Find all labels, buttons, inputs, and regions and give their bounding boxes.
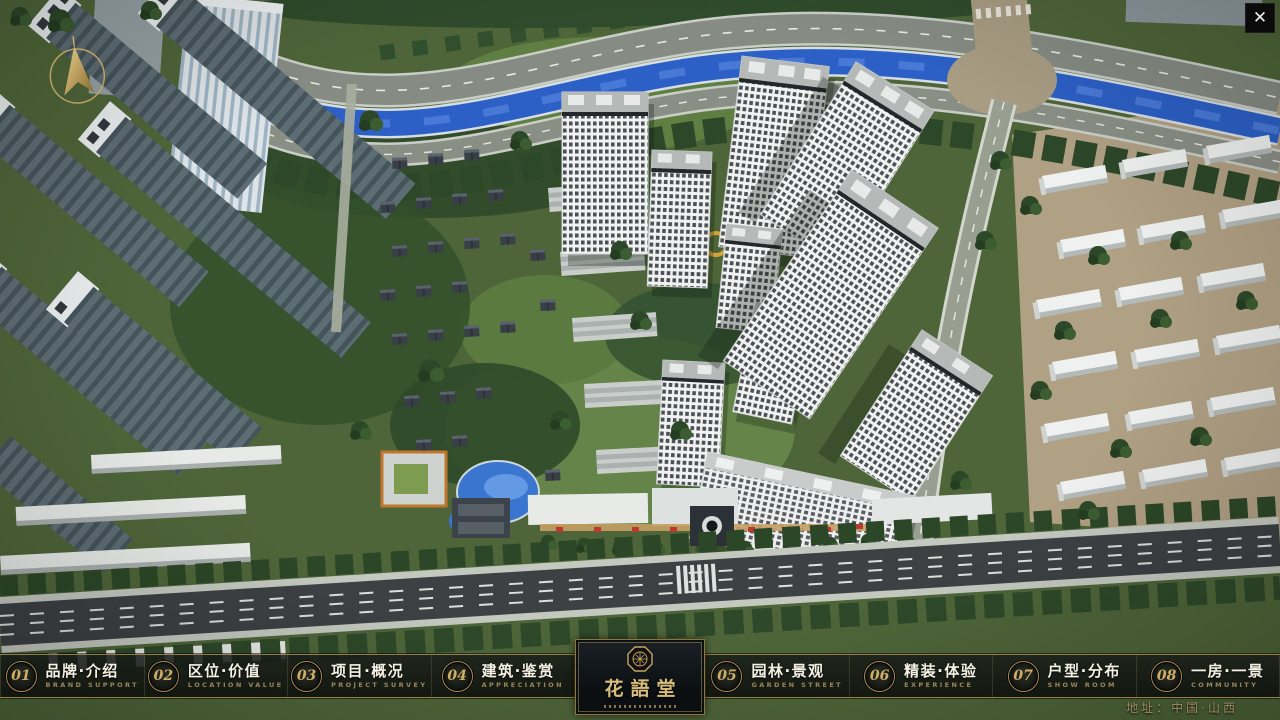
close-icon: ✕ xyxy=(1253,10,1267,27)
nav-sublabel: SHOW ROOM xyxy=(1048,682,1117,689)
nav-label: 精装·体验 xyxy=(904,664,977,679)
nav-number-badge: 02 xyxy=(148,661,179,692)
compass-north-icon xyxy=(34,28,120,118)
nav-item-floorplan[interactable]: 07 户型·分布SHOW ROOM xyxy=(993,655,1137,697)
nav-item-brand[interactable]: 01 品牌·介绍BRAND SUPPORT xyxy=(0,655,145,697)
nav-item-architecture[interactable]: 04 建筑·鉴赏APPRECIATION xyxy=(432,655,576,697)
nav-group-left: 01 品牌·介绍BRAND SUPPORT 02 区位·价值LOCATION V… xyxy=(0,655,575,697)
nav-item-views[interactable]: 08 一房·一景COMMUNITY xyxy=(1137,655,1280,697)
project-logo[interactable]: 花語堂 xyxy=(575,639,705,715)
nav-number-badge: 05 xyxy=(711,661,742,692)
nav-group-right: 05 园林·景观GARDEN STREET 06 精装·体验EXPERIENCE… xyxy=(705,655,1280,697)
nav-item-location[interactable]: 02 区位·价值LOCATION VALUE xyxy=(145,655,289,697)
nav-number-badge: 03 xyxy=(291,661,322,692)
nav-sublabel: APPRECIATION xyxy=(482,682,564,689)
nav-label: 项目·概况 xyxy=(331,664,404,679)
nav-number-badge: 06 xyxy=(864,661,895,692)
sales-presentation-screen: ✕ 01 品牌·介绍BRAND SUPPORT 02 区位·价值LOCATION… xyxy=(0,0,1280,720)
nav-sublabel: GARDEN STREET xyxy=(751,682,843,689)
nav-sublabel: EXPERIENCE xyxy=(904,682,973,689)
nav-item-interior[interactable]: 06 精装·体验EXPERIENCE xyxy=(850,655,994,697)
nav-label: 一房·一景 xyxy=(1191,664,1264,679)
nav-label: 建筑·鉴赏 xyxy=(482,664,555,679)
nav-number-badge: 04 xyxy=(442,661,473,692)
nav-sublabel: PROJECT SURVEY xyxy=(331,682,427,689)
nav-sublabel: BRAND SUPPORT xyxy=(46,682,139,689)
nav-number-badge: 07 xyxy=(1008,661,1039,692)
nav-item-garden[interactable]: 05 园林·景观GARDEN STREET xyxy=(705,655,850,697)
nav-label: 户型·分布 xyxy=(1048,664,1121,679)
aerial-site-map xyxy=(0,0,1280,720)
nav-item-project[interactable]: 03 项目·概况PROJECT SURVEY xyxy=(288,655,432,697)
nav-number-badge: 08 xyxy=(1151,661,1182,692)
logo-title: 花語堂 xyxy=(597,674,682,701)
logo-caption-line xyxy=(604,705,676,708)
nav-label: 品牌·介绍 xyxy=(46,664,119,679)
nav-label: 园林·景观 xyxy=(751,664,824,679)
nav-sublabel: LOCATION VALUE xyxy=(188,682,284,689)
close-button[interactable]: ✕ xyxy=(1245,3,1275,33)
nav-number-badge: 01 xyxy=(6,661,37,692)
bottom-nav-bar: 01 品牌·介绍BRAND SUPPORT 02 区位·价值LOCATION V… xyxy=(0,654,1280,698)
nav-sublabel: COMMUNITY xyxy=(1191,682,1258,689)
logo-seal-icon xyxy=(627,646,653,672)
nav-label: 区位·价值 xyxy=(188,664,261,679)
project-address: 地址：中国·山西 xyxy=(1126,699,1238,716)
